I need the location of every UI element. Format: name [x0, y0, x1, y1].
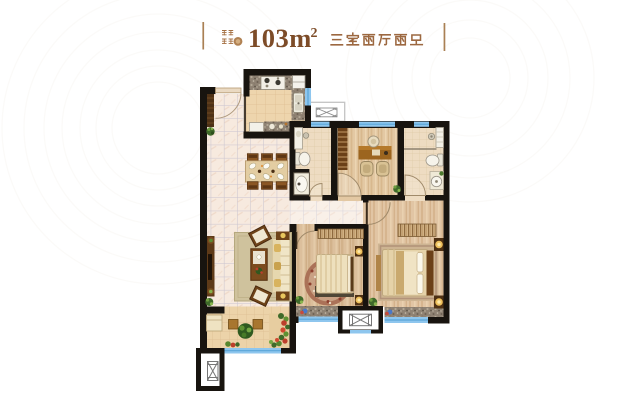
svg-text:103m: 103m: [248, 23, 312, 53]
svg-text:2: 2: [311, 26, 318, 41]
